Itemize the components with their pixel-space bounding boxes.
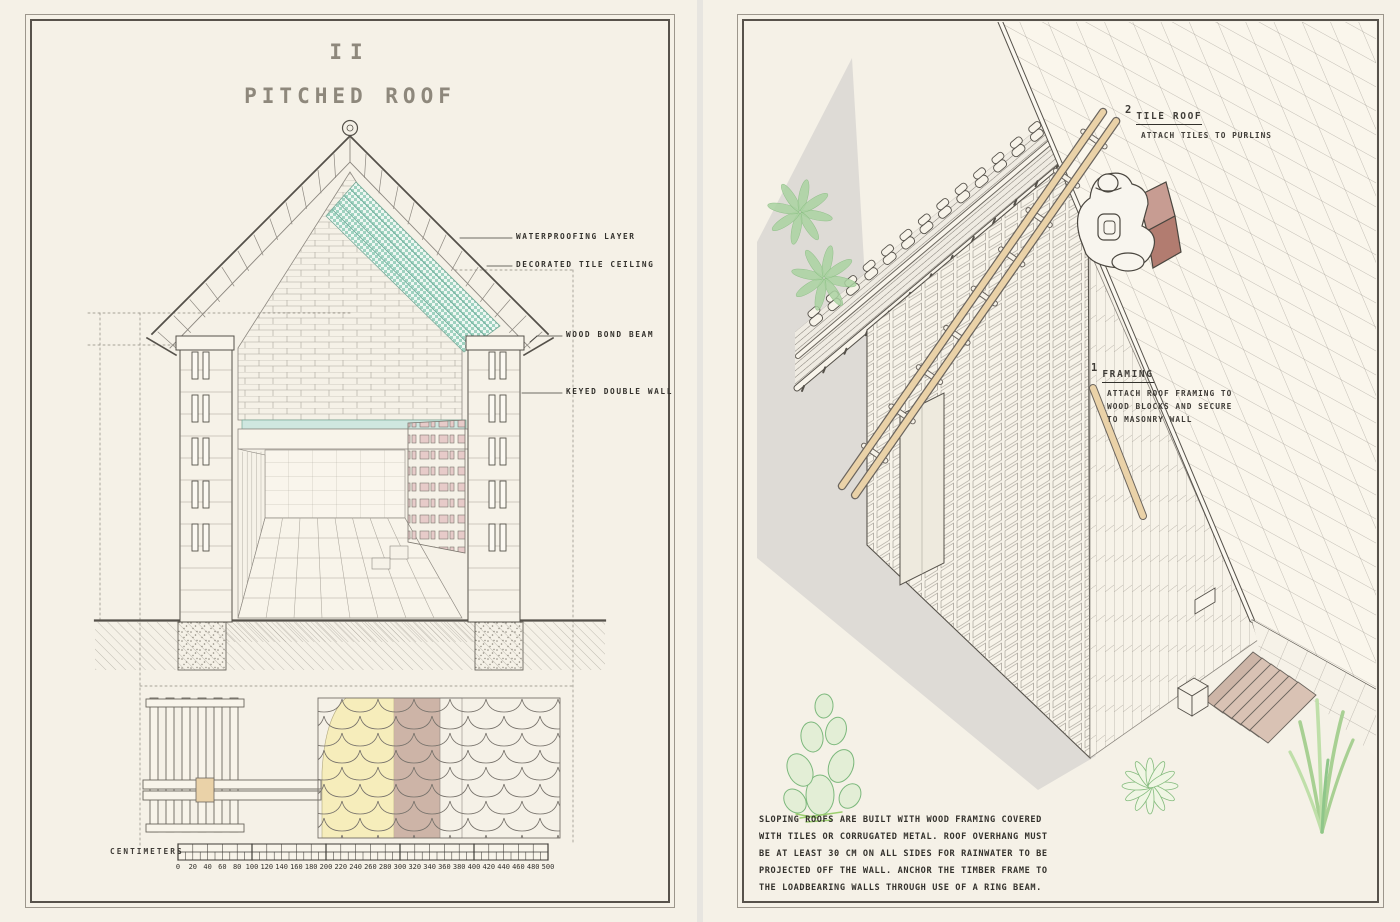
scale-number: 80 (233, 863, 241, 871)
callout-decorated-tile-ceiling: DECORATED TILE CEILING (516, 261, 654, 269)
scale-number: 120 (260, 863, 273, 871)
scale-number: 440 (497, 863, 510, 871)
step-framing: 1FRAMING ATTACH ROOF FRAMING TO WOOD BLO… (1091, 362, 1232, 426)
scale-number: 60 (218, 863, 226, 871)
roof-plan-detail (143, 698, 560, 838)
callout-keyed-double-wall: KEYED DOUBLE WALL (566, 388, 673, 396)
scale-number: 40 (203, 863, 211, 871)
scale-number: 360 (438, 863, 451, 871)
scale-number: 260 (364, 863, 377, 871)
worker-head (1098, 174, 1118, 192)
scale-number: 480 (527, 863, 540, 871)
scale-number: 460 (512, 863, 525, 871)
scale-number: 280 (379, 863, 392, 871)
scale-number: 160 (290, 863, 303, 871)
scale-number: 380 (453, 863, 466, 871)
scale-number: 340 (423, 863, 436, 871)
scale-number: 0 (176, 863, 180, 871)
ground-section (95, 621, 605, 671)
callout-wood-bond-beam: WOOD BOND BEAM (566, 331, 654, 339)
decorated-tile-wall (408, 420, 465, 553)
scale-number: 200 (320, 863, 333, 871)
scale-number: 320 (408, 863, 421, 871)
worker-figure (1078, 173, 1181, 271)
scale-number: 420 (482, 863, 495, 871)
scale-number: 220 (334, 863, 347, 871)
scale-number: 140 (275, 863, 288, 871)
worker-backpack (1098, 214, 1120, 240)
scale-number: 500 (542, 863, 555, 871)
scale-tick-numbers: 0204060801001201401601802002202402602803… (178, 863, 558, 875)
scale-number: 20 (189, 863, 197, 871)
sheet-numeral: II (0, 40, 700, 64)
step-number: 1 (1091, 362, 1097, 374)
prickly-pear-cactus (779, 693, 865, 822)
section-drawing (0, 0, 700, 922)
drawing-spread: II PITCHED ROOF WATERPROOFING LAYER DECO… (0, 0, 1400, 922)
step-note: ATTACH ROOF FRAMING TO WOOD BLOCKS AND S… (1107, 387, 1232, 426)
scale-number: 400 (468, 863, 481, 871)
scale-unit-label: CENTIMETERS (110, 848, 184, 856)
tile-field (318, 698, 560, 838)
step-title: TILE ROOF (1136, 111, 1202, 125)
step-note: ATTACH TILES TO PURLINS (1141, 129, 1272, 142)
scale-number: 300 (394, 863, 407, 871)
interior-room (238, 420, 465, 618)
scale-number: 180 (305, 863, 318, 871)
scale-number: 240 (349, 863, 362, 871)
step-tile-roof: 2TILE ROOF ATTACH TILES TO PURLINS (1125, 104, 1272, 142)
scale-number: 100 (246, 863, 259, 871)
sheet-title: PITCHED ROOF (0, 84, 700, 108)
step-number: 2 (1125, 104, 1131, 116)
axonometric-drawing (700, 0, 1400, 922)
scale-bar (178, 844, 548, 860)
construction-caption: SLOPING ROOFS ARE BUILT WITH WOOD FRAMIN… (759, 812, 1048, 897)
step-title: FRAMING (1102, 369, 1153, 383)
callout-waterproofing-layer: WATERPROOFING LAYER (516, 233, 636, 241)
agave-plant (1122, 758, 1178, 814)
